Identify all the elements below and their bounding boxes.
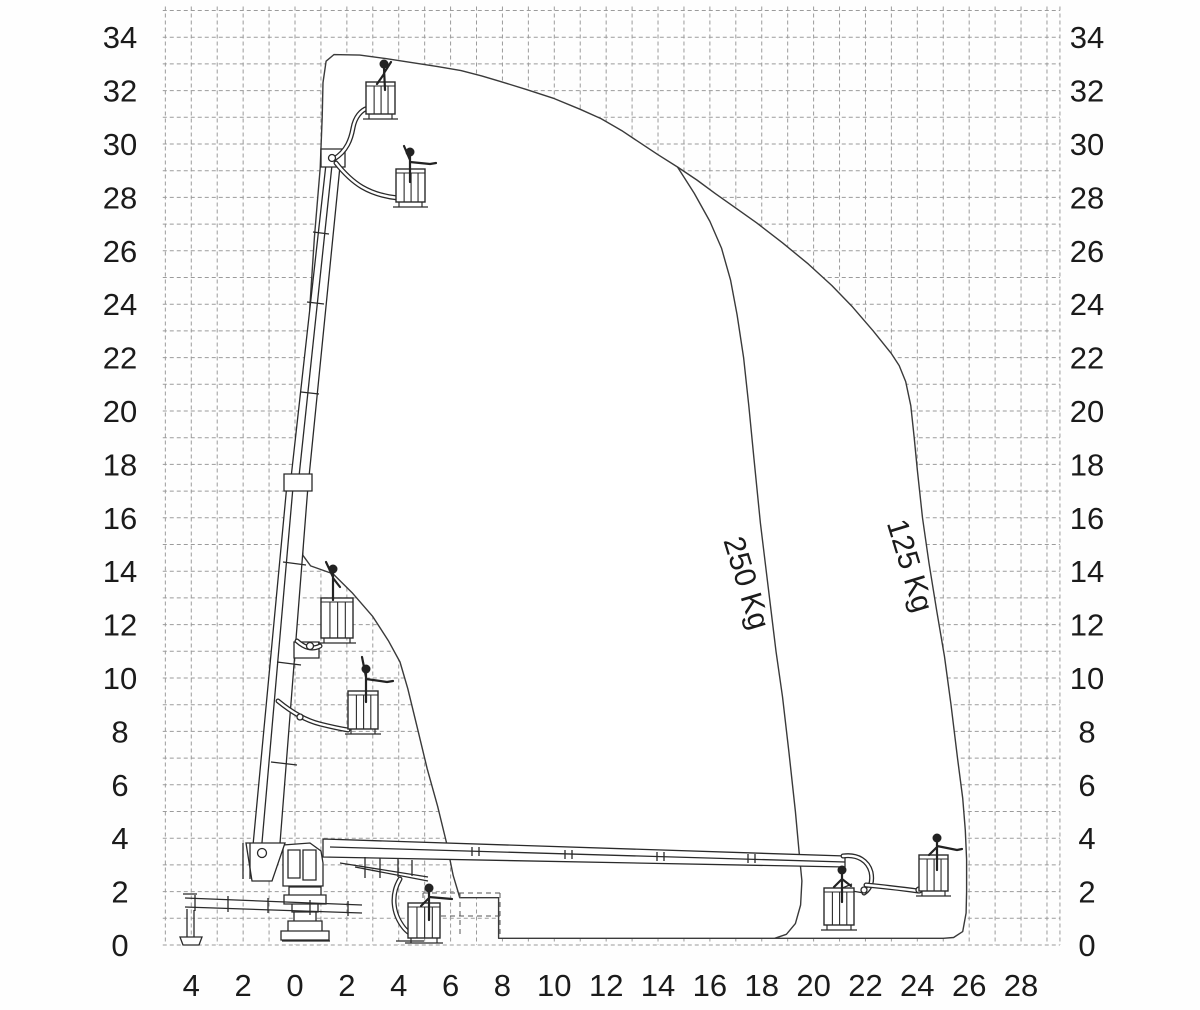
y-axis-right-tick-label: 14	[1070, 554, 1104, 589]
x-axis-tick-label: 14	[641, 968, 675, 1003]
y-axis-right-tick-label: 24	[1070, 287, 1104, 322]
x-axis-tick-label: 28	[1004, 968, 1038, 1003]
pivot-joint	[297, 714, 303, 720]
y-axis-right-tick-label: 18	[1070, 447, 1104, 482]
y-axis-left-tick-label: 28	[103, 180, 137, 215]
y-axis-left-tick-label: 16	[103, 501, 137, 536]
x-axis-tick-label: 18	[744, 968, 778, 1003]
machine-part	[252, 484, 308, 856]
y-axis-right-tick-label: 20	[1070, 394, 1104, 429]
y-axis-left-tick-label: 22	[103, 341, 137, 376]
y-axis-right-tick-label: 28	[1070, 180, 1104, 215]
y-axis-left-tick-label: 34	[103, 20, 137, 55]
y-axis-right-tick-label: 10	[1070, 661, 1104, 696]
machine-part	[281, 912, 329, 940]
y-axis-left-tick-label: 20	[103, 394, 137, 429]
y-axis-right-tick-label: 34	[1070, 20, 1104, 55]
machine-part	[185, 898, 362, 913]
y-axis-right-tick-label: 4	[1078, 821, 1095, 856]
y-axis-left-tick-label: 10	[103, 661, 137, 696]
y-axis-right-tick-label: 8	[1078, 714, 1095, 749]
y-axis-right-tick-label: 2	[1078, 875, 1095, 910]
y-axis-right-tick-label: 12	[1070, 608, 1104, 643]
machine-part	[284, 474, 312, 491]
machine-part	[284, 887, 326, 912]
platform-basket	[318, 598, 356, 643]
y-axis-left-tick-label: 14	[103, 554, 137, 589]
pivot-joint	[307, 643, 314, 650]
pivot-joint	[329, 155, 336, 162]
y-axis-left-tick-label: 30	[103, 127, 137, 162]
x-axis-tick-label: 26	[952, 968, 986, 1003]
y-axis-left-tick-label: 24	[103, 287, 137, 322]
y-axis-left-tick-label: 12	[103, 608, 137, 643]
y-axis-right-tick-label: 30	[1070, 127, 1104, 162]
pivot-joint	[861, 887, 867, 893]
y-axis-left-tick-label: 4	[111, 821, 128, 856]
y-axis-left-tick-label: 2	[111, 875, 128, 910]
platform-basket	[363, 82, 398, 119]
platform-basket	[916, 855, 951, 896]
y-axis-left-tick-label: 0	[111, 928, 128, 963]
x-axis-tick-label: 12	[589, 968, 623, 1003]
y-axis-right-tick-label: 16	[1070, 501, 1104, 536]
x-axis-tick-label: 6	[442, 968, 459, 1003]
platform-basket	[345, 691, 381, 734]
platform-basket	[405, 903, 443, 943]
x-axis-tick-label: 2	[234, 968, 251, 1003]
y-axis-left-tick-label: 18	[103, 447, 137, 482]
y-axis-right-tick-label: 6	[1078, 768, 1095, 803]
y-axis-left-tick-label: 6	[111, 768, 128, 803]
x-axis-tick-label: 0	[286, 968, 303, 1003]
load-chart-page: 250 Kg125 Kg 024681012141618202224262830…	[0, 0, 1200, 1010]
x-axis-tick-label: 24	[900, 968, 934, 1003]
x-axis-tick-label: 2	[338, 968, 355, 1003]
machine-part	[180, 937, 202, 945]
platform-basket	[821, 888, 857, 930]
y-axis-left-tick-label: 32	[103, 74, 137, 109]
x-axis-tick-label: 16	[693, 968, 727, 1003]
machine-part	[340, 857, 428, 881]
machine-part	[246, 843, 285, 881]
y-axis-left-tick-label: 26	[103, 234, 137, 269]
x-axis-tick-label: 22	[848, 968, 882, 1003]
x-axis-tick-label: 4	[390, 968, 407, 1003]
x-axis-tick-label: 20	[796, 968, 830, 1003]
x-axis-tick-label: 4	[183, 968, 200, 1003]
y-axis-right-tick-label: 26	[1070, 234, 1104, 269]
y-axis-right-tick-label: 32	[1070, 74, 1104, 109]
y-axis-right-tick-label: 0	[1078, 928, 1095, 963]
x-axis-tick-label: 10	[537, 968, 571, 1003]
y-axis-left-tick-label: 8	[111, 714, 128, 749]
x-axis-tick-label: 8	[494, 968, 511, 1003]
y-axis-right-tick-label: 22	[1070, 341, 1104, 376]
pivot-joint	[258, 849, 267, 858]
work-envelope-chart: 250 Kg125 Kg 024681012141618202224262830…	[0, 0, 1200, 1010]
